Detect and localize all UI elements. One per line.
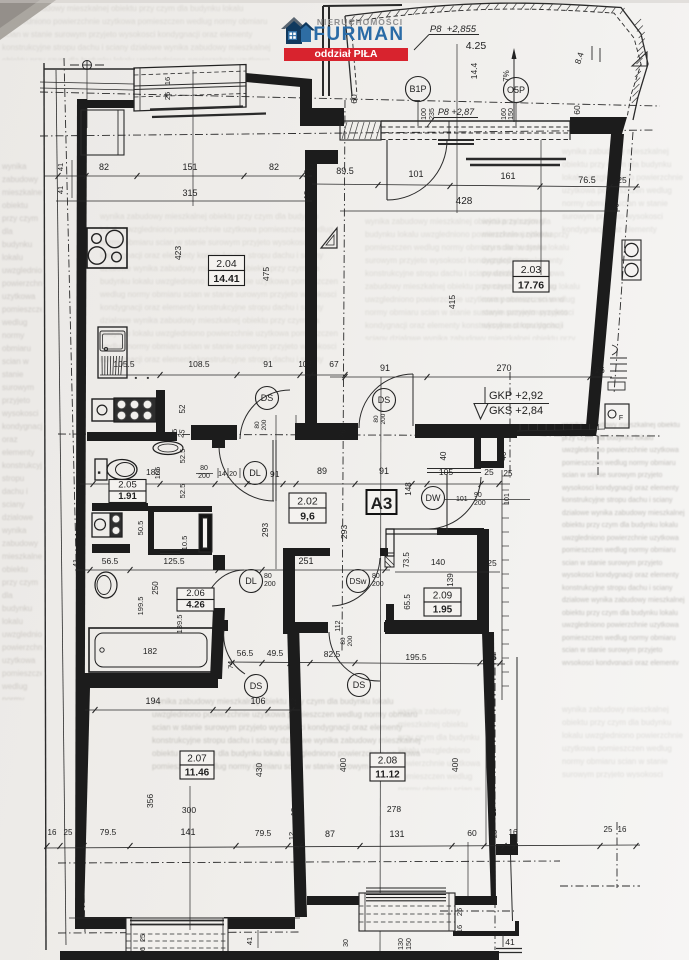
svg-text:10.5: 10.5 [180, 536, 189, 551]
svg-text:16: 16 [163, 77, 172, 85]
svg-text:2.08: 2.08 [378, 756, 398, 767]
svg-text:60: 60 [572, 105, 582, 115]
svg-text:112: 112 [335, 620, 342, 631]
svg-text:160: 160 [501, 108, 508, 120]
svg-text:O5P: O5P [507, 85, 525, 95]
svg-text:106: 106 [250, 696, 265, 706]
svg-text:235: 235 [429, 108, 436, 120]
svg-text:91: 91 [270, 469, 280, 479]
svg-text:131: 131 [389, 829, 404, 839]
svg-text:140: 140 [431, 557, 445, 567]
svg-text:52.5: 52.5 [178, 449, 187, 464]
svg-text:80: 80 [254, 421, 261, 429]
svg-text:25: 25 [617, 175, 627, 185]
svg-text:■: ■ [147, 375, 150, 380]
svg-text:105.5: 105.5 [113, 359, 135, 369]
svg-text:195.5: 195.5 [405, 652, 427, 662]
svg-text:270: 270 [496, 363, 511, 373]
svg-text:25: 25 [455, 908, 464, 916]
svg-text:25: 25 [487, 558, 497, 568]
svg-text:DSw: DSw [350, 577, 367, 586]
svg-text:139.5: 139.5 [175, 615, 184, 634]
svg-text:F: F [619, 415, 623, 422]
svg-text:89: 89 [317, 466, 327, 476]
svg-text:87: 87 [325, 829, 335, 839]
svg-text:14: 14 [218, 471, 226, 478]
svg-text:89.5: 89.5 [336, 166, 354, 176]
svg-text:30: 30 [343, 939, 350, 947]
svg-text:82: 82 [269, 162, 279, 172]
svg-text:41: 41 [56, 186, 65, 194]
svg-text:DS: DS [378, 395, 391, 405]
svg-text:108.5: 108.5 [188, 359, 210, 369]
svg-text:40: 40 [499, 451, 508, 460]
svg-text:65.5: 65.5 [403, 594, 412, 610]
svg-text:P8 +2,87: P8 +2,87 [438, 107, 475, 117]
svg-text:49.5: 49.5 [267, 648, 284, 658]
svg-text:41: 41 [245, 937, 254, 945]
svg-text:DL: DL [245, 576, 257, 586]
svg-text:25: 25 [176, 428, 187, 438]
svg-text:91: 91 [380, 363, 390, 373]
svg-text:251: 251 [298, 556, 313, 566]
svg-text:14.4: 14.4 [469, 62, 479, 79]
svg-text:150: 150 [508, 108, 515, 120]
svg-text:250: 250 [151, 581, 160, 595]
svg-text:14.41: 14.41 [213, 273, 239, 285]
svg-text:25: 25 [489, 808, 498, 816]
svg-text:150: 150 [406, 938, 413, 950]
svg-text:200: 200 [198, 473, 210, 480]
svg-text:2.02: 2.02 [297, 496, 318, 508]
svg-text:56.5: 56.5 [237, 648, 254, 658]
svg-text:A3: A3 [371, 494, 393, 513]
svg-text:12: 12 [289, 698, 298, 706]
svg-text:161: 161 [500, 171, 515, 181]
svg-text:293: 293 [339, 525, 349, 539]
svg-text:1.91: 1.91 [118, 491, 137, 502]
svg-text:80: 80 [264, 573, 272, 580]
svg-text:■: ■ [135, 375, 138, 380]
svg-text:105: 105 [439, 467, 453, 477]
svg-text:17.76: 17.76 [518, 280, 544, 292]
svg-text:102: 102 [298, 360, 312, 369]
svg-text:82.5: 82.5 [324, 649, 341, 659]
svg-text:■: ■ [97, 470, 100, 476]
svg-text:139: 139 [446, 573, 455, 587]
svg-text:300: 300 [182, 805, 196, 815]
svg-text:16: 16 [455, 925, 464, 933]
svg-text:50.5: 50.5 [136, 521, 145, 536]
svg-text:12: 12 [287, 832, 296, 840]
svg-text:2.03: 2.03 [521, 264, 542, 276]
svg-text:41: 41 [505, 937, 515, 947]
svg-text:194: 194 [145, 696, 160, 706]
svg-text:141: 141 [180, 827, 195, 837]
svg-text:GKS +2,84: GKS +2,84 [489, 405, 543, 417]
svg-text:200: 200 [261, 419, 268, 430]
svg-text:12: 12 [302, 191, 311, 199]
svg-text:25: 25 [163, 92, 172, 100]
svg-text:80: 80 [373, 415, 380, 423]
svg-text:25: 25 [490, 830, 499, 838]
svg-text:7%: 7% [502, 70, 511, 82]
svg-text:DW: DW [426, 493, 441, 503]
svg-text:41: 41 [56, 163, 65, 171]
svg-text:4.25: 4.25 [466, 40, 487, 52]
svg-text:16: 16 [618, 825, 627, 834]
svg-text:80: 80 [372, 573, 380, 580]
svg-text:25: 25 [484, 467, 494, 477]
svg-text:151: 151 [182, 162, 197, 172]
svg-text:11.46: 11.46 [185, 768, 210, 779]
svg-text:2.09: 2.09 [433, 591, 453, 602]
svg-text:200: 200 [372, 581, 384, 588]
svg-text:356: 356 [145, 794, 155, 808]
svg-text:125.5: 125.5 [163, 556, 185, 566]
svg-text:415: 415 [447, 295, 457, 309]
svg-text:82: 82 [99, 162, 109, 172]
svg-text:200: 200 [264, 581, 276, 588]
svg-text:315: 315 [182, 188, 197, 198]
svg-text:73.5: 73.5 [402, 552, 411, 568]
svg-text:79.5: 79.5 [100, 827, 117, 837]
svg-text:41: 41 [71, 559, 80, 567]
svg-text:DS: DS [261, 393, 274, 403]
svg-text:148: 148 [404, 482, 413, 496]
svg-text:12: 12 [302, 170, 311, 178]
svg-text:4.26: 4.26 [186, 600, 205, 611]
svg-text:DS: DS [250, 681, 263, 691]
svg-text:278: 278 [387, 804, 401, 814]
svg-text:DL: DL [249, 468, 261, 478]
svg-text:52: 52 [178, 404, 187, 413]
svg-text:56.5: 56.5 [102, 556, 119, 566]
svg-text:400: 400 [338, 758, 348, 772]
svg-text:40: 40 [439, 451, 448, 460]
svg-text:2.05: 2.05 [118, 480, 137, 491]
svg-text:76.5: 76.5 [578, 175, 596, 185]
svg-text:105: 105 [153, 467, 162, 480]
svg-text:P8 +2,855: P8 +2,855 [430, 24, 477, 35]
svg-text:130: 130 [398, 938, 405, 950]
svg-text:200: 200 [347, 635, 354, 646]
svg-text:428: 428 [456, 196, 473, 207]
svg-text:101: 101 [504, 493, 511, 505]
svg-text:475: 475 [261, 267, 271, 281]
svg-text:9,6: 9,6 [300, 511, 315, 523]
svg-text:80: 80 [200, 465, 208, 472]
svg-text:80: 80 [340, 637, 347, 645]
svg-text:16: 16 [48, 828, 57, 837]
svg-text:423: 423 [173, 246, 183, 260]
svg-text:100: 100 [421, 108, 428, 120]
svg-text:2.06: 2.06 [186, 588, 205, 599]
svg-text:26: 26 [610, 202, 621, 213]
svg-text:8.4: 8.4 [573, 51, 586, 66]
svg-text:293: 293 [260, 523, 270, 537]
svg-text:20: 20 [229, 471, 237, 478]
svg-text:430: 430 [254, 763, 264, 777]
svg-text:25: 25 [64, 828, 73, 837]
svg-text:52.5: 52.5 [178, 484, 187, 499]
svg-text:91: 91 [263, 359, 273, 369]
svg-text:B1P: B1P [409, 84, 426, 94]
svg-text:DS: DS [353, 680, 366, 690]
svg-text:25: 25 [504, 469, 513, 478]
svg-text:60: 60 [467, 828, 477, 838]
svg-text:16: 16 [509, 828, 518, 837]
svg-text:400: 400 [450, 758, 460, 772]
svg-text:199.5: 199.5 [136, 597, 145, 616]
svg-text:25: 25 [140, 934, 147, 942]
svg-text:67: 67 [329, 359, 339, 369]
svg-text:200: 200 [474, 500, 486, 507]
svg-text:25: 25 [604, 825, 613, 834]
svg-text:2.07: 2.07 [187, 754, 207, 765]
svg-text:11.12: 11.12 [375, 770, 400, 781]
svg-text:74: 74 [228, 661, 235, 669]
svg-text:GKP +2,92: GKP +2,92 [489, 390, 543, 402]
svg-text:79.5: 79.5 [255, 828, 272, 838]
svg-text:12: 12 [289, 808, 298, 816]
svg-text:182: 182 [143, 646, 157, 656]
svg-text:101: 101 [408, 169, 423, 179]
svg-text:2.04: 2.04 [216, 258, 237, 270]
svg-text:1.95: 1.95 [433, 605, 453, 616]
